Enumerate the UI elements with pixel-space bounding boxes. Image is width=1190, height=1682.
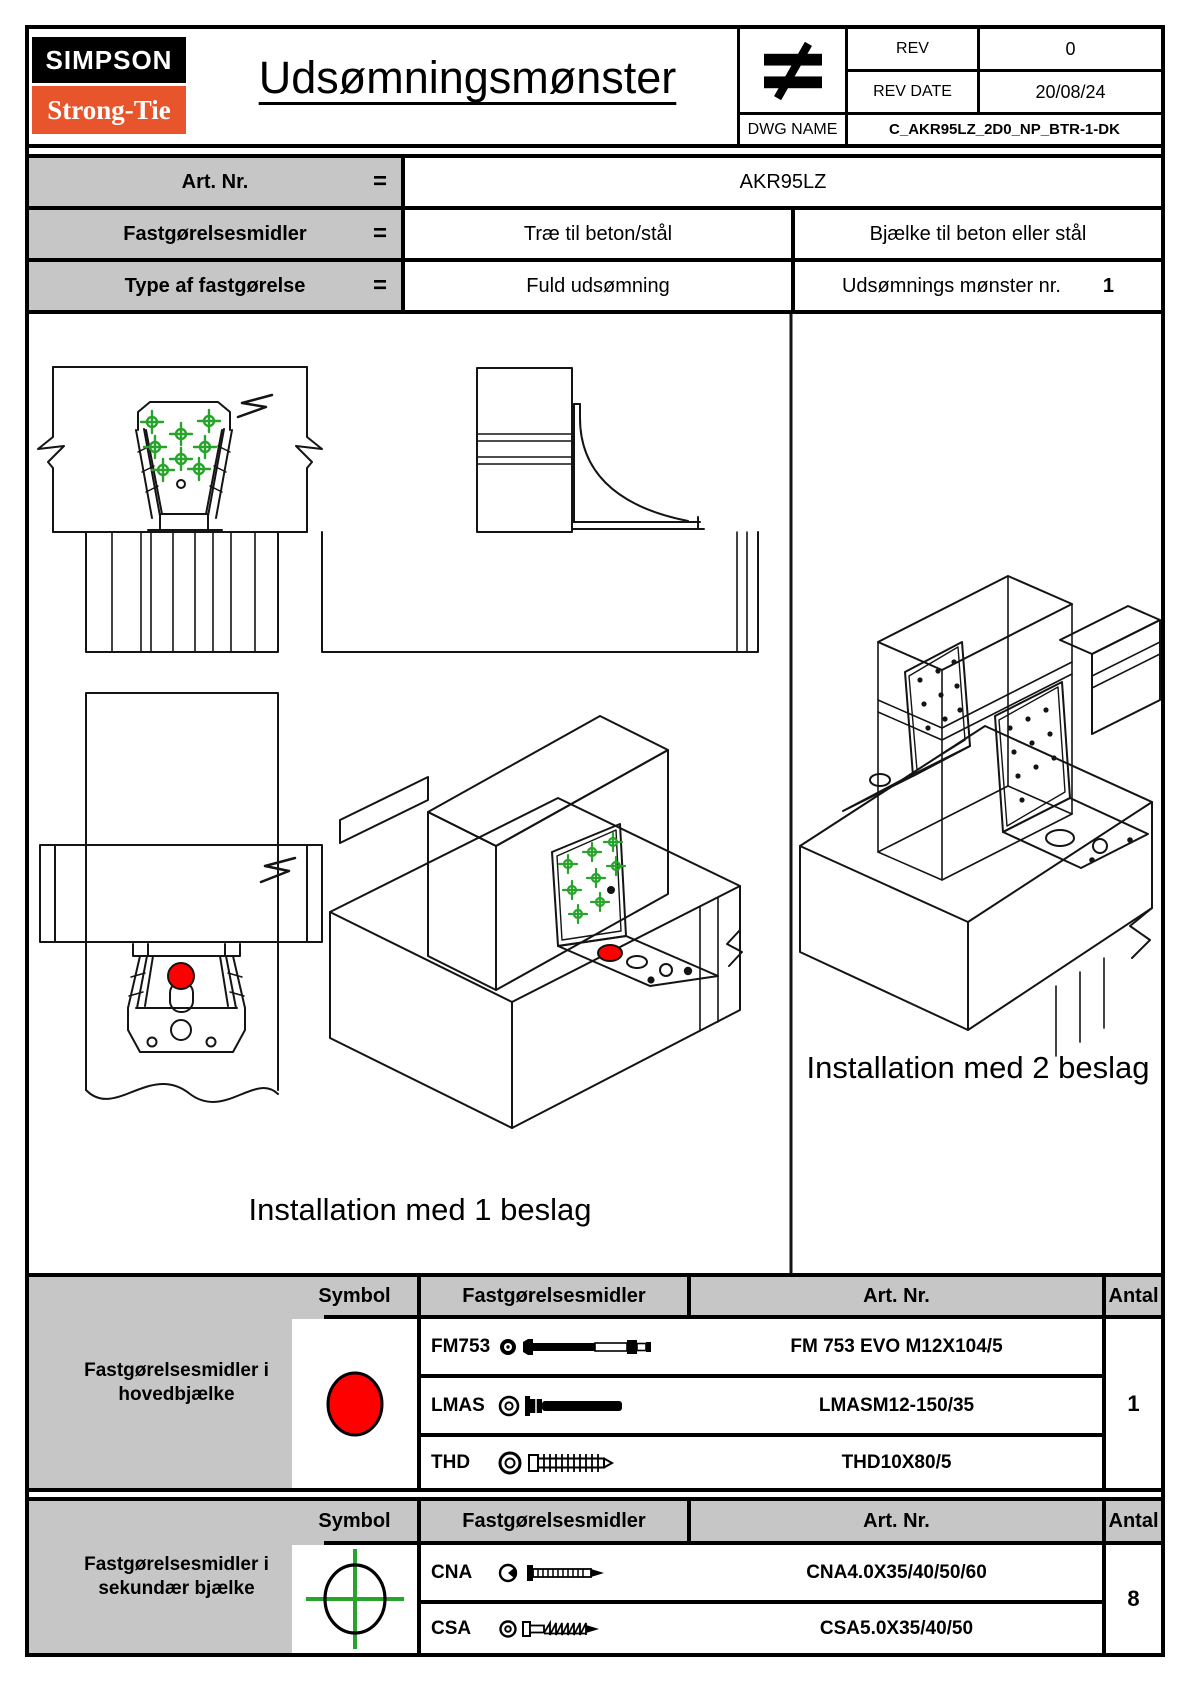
symbol-cell <box>292 1319 417 1488</box>
product-info-table: Art. Nr. = AKR95LZ Fastgørelsesmidler = … <box>25 154 1165 314</box>
beam-type-value: Bjælke til beton eller stål <box>795 210 1161 258</box>
col-header-artnr: Art. Nr. <box>691 1501 1102 1541</box>
header-bottom-border <box>25 144 1165 148</box>
pattern-number-cell: Udsømnings mønster nr. 1 <box>795 262 1161 310</box>
pattern-number-value: 1 <box>1103 275 1114 298</box>
equals-sign: = <box>373 220 387 248</box>
main-beam-fastener-table: Fastgørelsesmidler i hovedbjælke Symbol … <box>25 1273 1165 1492</box>
not-equal-icon <box>756 42 830 100</box>
art-nr-cell: CSA5.0X35/40/50 <box>691 1604 1102 1653</box>
rev-date-value: 20/08/24 <box>980 72 1161 112</box>
cna-ring-nail-icon <box>497 1558 682 1588</box>
equals-sign: = <box>373 272 387 300</box>
info-row-art-nr: Art. Nr. = AKR95LZ <box>29 158 1161 210</box>
fixing-type-value: Fuld udsømning <box>405 262 795 310</box>
bottom-view <box>40 693 322 1102</box>
qty-cell: 1 <box>1106 1319 1161 1488</box>
break-line <box>86 1084 278 1102</box>
csa-screw-icon <box>497 1614 682 1644</box>
info-row-fasteners: Fastgørelsesmidler = Træ til beton/stål … <box>29 210 1161 262</box>
fastener-row: CSA <box>421 1604 697 1653</box>
revision-stamp <box>740 29 845 112</box>
page-title: Udsømningsmønster <box>205 52 730 104</box>
col-header-artnr: Art. Nr. <box>691 1277 1102 1315</box>
fastener-code: LMAS <box>431 1395 497 1417</box>
fastener-type-value: Træ til beton/stål <box>405 210 795 258</box>
fastener-code: CSA <box>431 1618 497 1640</box>
fastener-code: THD <box>431 1452 497 1474</box>
drawing-sheet: { "header": { "logo_line1": "SIMPSON", "… <box>0 0 1190 1682</box>
anchor-position-marker <box>168 963 194 989</box>
nail-position-markers <box>559 833 625 923</box>
pattern-number-label: Udsømnings mønster nr. <box>842 275 1061 298</box>
equals-sign: = <box>373 168 387 196</box>
rev-date-label: REV DATE <box>848 72 977 112</box>
nail-position-markers <box>141 410 220 481</box>
rev-label: REV <box>848 29 977 69</box>
fm753-bolt-icon <box>497 1332 682 1362</box>
nail-symbol-green-crosshair-icon <box>296 1547 414 1651</box>
col-header-symbol: Symbol <box>292 1501 417 1541</box>
fastener-row: LMAS <box>421 1378 697 1433</box>
installation-drawings <box>25 314 1165 1273</box>
bracket-left <box>843 642 970 811</box>
lmas-anchor-bolt-icon <box>497 1391 682 1421</box>
info-row-fixing-type: Type af fastgørelse = Fuld udsømning Uds… <box>29 262 1161 310</box>
break-symbol <box>238 395 272 417</box>
thd-concrete-screw-icon <box>497 1448 682 1478</box>
table-row-label: Fastgørelsesmidler i sekundær bjælke <box>29 1501 324 1653</box>
simpson-strongtie-logo: SIMPSON Strong-Tie <box>32 37 186 134</box>
art-nr-value: AKR95LZ <box>405 158 1161 206</box>
info-label-text: Art. Nr. <box>182 171 249 194</box>
art-nr-cell: CNA4.0X35/40/50/60 <box>691 1545 1102 1600</box>
dwg-name-value: C_AKR95LZ_2D0_NP_BTR-1-DK <box>848 115 1161 144</box>
secondary-beam-fastener-table: Fastgørelsesmidler i sekundær bjælke Sym… <box>25 1497 1165 1657</box>
qty-cell: 8 <box>1106 1545 1161 1653</box>
col-header-fastener: Fastgørelsesmidler <box>421 1277 687 1315</box>
col-header-symbol: Symbol <box>292 1277 417 1315</box>
anchor-symbol-red-circle-icon <box>320 1367 390 1441</box>
fastener-row: FM753 <box>421 1319 697 1374</box>
info-label-text: Type af fastgørelse <box>125 275 306 298</box>
art-nr-cell: FM 753 EVO M12X104/5 <box>691 1319 1102 1374</box>
info-label: Fastgørelsesmidler = <box>29 210 405 258</box>
col-header-qty: Antal <box>1106 1501 1161 1541</box>
info-label-text: Fastgørelsesmidler <box>123 223 306 246</box>
side-view <box>322 368 758 652</box>
isometric-one-bracket <box>330 716 742 1128</box>
col-header-qty: Antal <box>1106 1277 1161 1315</box>
anchor-position-marker <box>598 945 622 961</box>
art-nr-cell: THD10X80/5 <box>691 1437 1102 1488</box>
caption-one-bracket: Installation med 1 beslag <box>180 1192 660 1228</box>
logo-simpson-text: SIMPSON <box>32 37 186 83</box>
table-row-label: Fastgørelsesmidler i hovedbjælke <box>29 1277 324 1488</box>
caption-two-brackets: Installation med 2 beslag <box>791 1050 1165 1086</box>
fastener-row: CNA <box>421 1545 697 1600</box>
fastener-code: FM753 <box>431 1336 497 1358</box>
info-label: Type af fastgørelse = <box>29 262 405 310</box>
col-header-fastener: Fastgørelsesmidler <box>421 1501 687 1541</box>
isometric-two-brackets <box>800 576 1160 1056</box>
fastener-code: CNA <box>431 1562 497 1584</box>
fastener-row: THD <box>421 1437 697 1488</box>
rev-value: 0 <box>980 29 1161 69</box>
dwg-name-label: DWG NAME <box>740 115 845 144</box>
symbol-cell <box>292 1545 417 1653</box>
front-view <box>38 367 322 652</box>
info-label: Art. Nr. = <box>29 158 405 206</box>
logo-strongtie-text: Strong-Tie <box>32 86 186 134</box>
art-nr-cell: LMASM12-150/35 <box>691 1378 1102 1433</box>
